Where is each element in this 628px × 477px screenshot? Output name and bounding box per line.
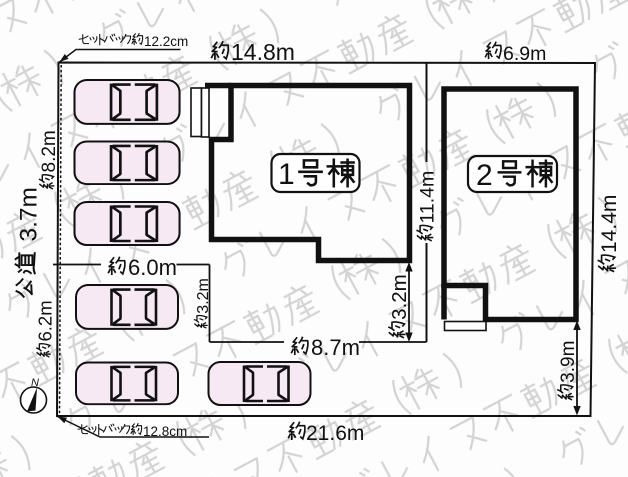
svg-text:3.7m: 3.7m [16,187,43,241]
svg-text:6.0m: 6.0m [128,255,177,280]
svg-text:8.2m: 8.2m [39,130,60,172]
svg-text:8.7m: 8.7m [311,335,360,360]
svg-text:1: 1 [278,158,295,191]
svg-text:3.2m: 3.2m [388,274,411,320]
svg-text:14.8m: 14.8m [231,39,295,65]
svg-text:6.2m: 6.2m [35,300,56,341]
svg-text:12.2cm: 12.2cm [144,34,188,49]
svg-text:N: N [31,377,39,389]
svg-text:6.9m: 6.9m [503,43,546,65]
svg-text:11.4m: 11.4m [417,171,439,224]
svg-text:21.6m: 21.6m [306,422,364,445]
svg-text:14.4m: 14.4m [598,195,621,253]
svg-text:2: 2 [476,159,493,192]
svg-text:12.8cm: 12.8cm [143,424,187,439]
svg-text:3.9m: 3.9m [558,341,579,383]
svg-text:3.2m: 3.2m [195,278,212,314]
